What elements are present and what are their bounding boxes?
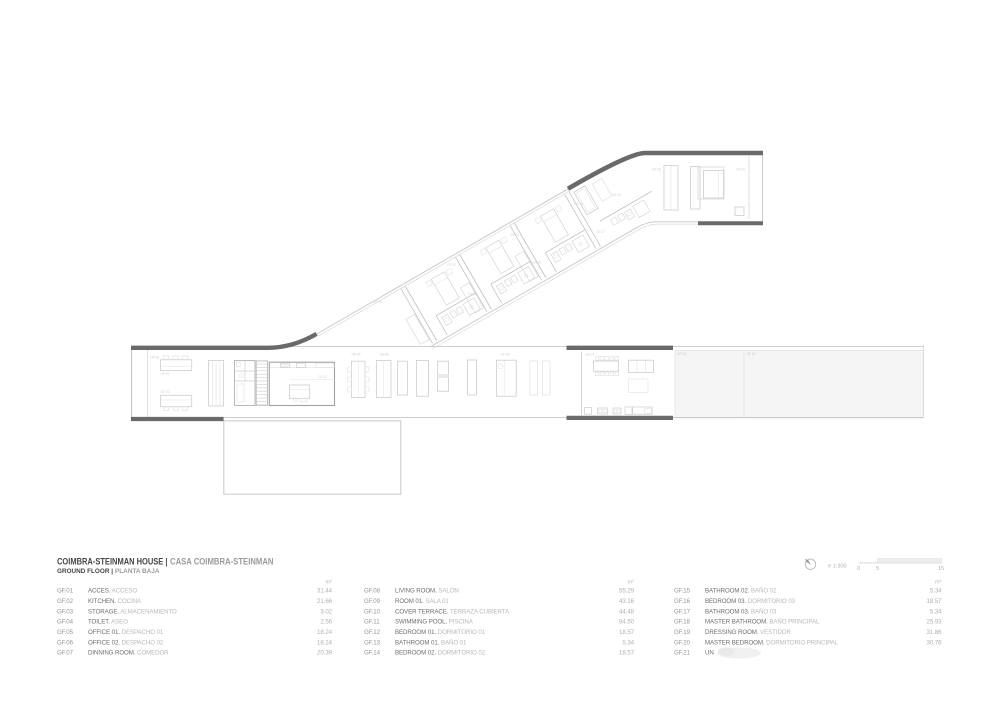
svg-text:GF.16: GF.16 [574, 202, 583, 206]
svg-text:OFFICE 02. DESPACHO 02: OFFICE 02. DESPACHO 02 [88, 639, 164, 646]
svg-text:GF.09: GF.09 [364, 598, 381, 605]
svg-text:GF.08: GF.08 [501, 352, 510, 356]
svg-text:94.50: 94.50 [619, 619, 635, 626]
svg-text:GF.10: GF.10 [677, 352, 686, 356]
svg-text:21.66: 21.66 [317, 598, 333, 605]
svg-text:GF.01: GF.01 [57, 588, 74, 595]
svg-text:GF.04: GF.04 [57, 619, 74, 626]
svg-text:5.34: 5.34 [622, 639, 634, 646]
svg-text:DRESSING ROOM. VESTIDOR: DRESSING ROOM. VESTIDOR [705, 629, 791, 636]
svg-text:31.44: 31.44 [317, 588, 333, 595]
svg-text:UN: UN [705, 650, 714, 657]
svg-text:CASA COIMBRA-STEINMAN: CASA COIMBRA-STEINMAN [170, 557, 274, 567]
svg-text:KITCHEN. COCINA: KITCHEN. COCINA [88, 598, 142, 605]
svg-text:BEDROOM 01. DORMITORIO 01: BEDROOM 01. DORMITORIO 01 [395, 629, 486, 636]
svg-text:PLANTA BAJA: PLANTA BAJA [115, 568, 160, 575]
svg-text:25.93: 25.93 [927, 619, 943, 626]
svg-text:2.56: 2.56 [320, 619, 332, 626]
svg-text:31.86: 31.86 [927, 629, 943, 636]
svg-text:e 1:300: e 1:300 [828, 563, 847, 569]
svg-text:m²: m² [627, 580, 634, 586]
svg-text:18.57: 18.57 [619, 629, 635, 636]
svg-text:5.34: 5.34 [930, 588, 942, 595]
svg-text:GF.18: GF.18 [612, 193, 621, 197]
svg-text:GF.17: GF.17 [596, 230, 605, 234]
svg-text:5.34: 5.34 [930, 608, 942, 615]
svg-text:GF.07: GF.07 [585, 353, 594, 357]
svg-text:BATHROOM 03. BAÑO 03: BATHROOM 03. BAÑO 03 [705, 608, 777, 615]
svg-text:GF.15: GF.15 [532, 261, 541, 265]
svg-text:GF.14: GF.14 [364, 650, 381, 657]
svg-text:GF.17: GF.17 [674, 608, 691, 615]
svg-text:MASTER BEDROOM. DORMITORIO PRI: MASTER BEDROOM. DORMITORIO PRINCIPAL [705, 639, 839, 646]
svg-text:18.24: 18.24 [317, 639, 333, 646]
svg-text:3.02: 3.02 [320, 608, 332, 615]
svg-text:TOILET. ASEO: TOILET. ASEO [88, 619, 128, 626]
svg-text:0: 0 [857, 566, 860, 572]
svg-text:18.57: 18.57 [619, 650, 635, 657]
svg-text:GF.06: GF.06 [57, 639, 74, 646]
svg-text:18.57: 18.57 [927, 598, 943, 605]
svg-text:GF.12: GF.12 [364, 629, 381, 636]
svg-text:MASTER BATHROOM. BAÑO PRINCIPA: MASTER BATHROOM. BAÑO PRINCIPAL [705, 619, 820, 626]
svg-text:44.48: 44.48 [619, 608, 635, 615]
svg-text:5: 5 [876, 566, 879, 572]
svg-text:ACCES. ACCESO: ACCES. ACCESO [88, 588, 137, 595]
svg-text:GF.18: GF.18 [674, 619, 691, 626]
svg-text:GF.05: GF.05 [352, 352, 361, 356]
svg-text:GROUND FLOOR |: GROUND FLOOR | [57, 568, 113, 575]
svg-text:GF.02: GF.02 [318, 375, 327, 379]
svg-text:GF.19: GF.19 [652, 168, 661, 172]
svg-text:OFFICE 01. DESPACHO 01: OFFICE 01. DESPACHO 01 [88, 629, 164, 636]
svg-text:DINNING ROOM. COMEDOR: DINNING ROOM. COMEDOR [88, 650, 169, 657]
svg-text:SWIMMING POOL. PISCINA: SWIMMING POOL. PISCINA [395, 619, 474, 626]
svg-text:COIMBRA-STEINMAN HOUSE |: COIMBRA-STEINMAN HOUSE | [57, 557, 168, 567]
svg-text:GF.20: GF.20 [674, 639, 691, 646]
svg-text:GF.11: GF.11 [364, 619, 380, 626]
svg-text:GF.21: GF.21 [674, 650, 691, 657]
svg-text:GF.15: GF.15 [674, 588, 691, 595]
svg-text:GF.05: GF.05 [57, 629, 74, 636]
svg-text:GF.10: GF.10 [364, 608, 381, 615]
svg-text:m²: m² [325, 580, 332, 586]
svg-text:GF.09: GF.09 [373, 300, 382, 304]
svg-text:GF.08: GF.08 [364, 588, 381, 595]
svg-text:55.29: 55.29 [619, 588, 635, 595]
svg-text:15: 15 [938, 566, 944, 572]
svg-text:GF.02: GF.02 [57, 598, 74, 605]
svg-text:LIVING ROOM. SALÓN: LIVING ROOM. SALÓN [395, 588, 459, 595]
svg-text:20.39: 20.39 [317, 650, 333, 657]
svg-text:BATHROOM 02. BAÑO 02: BATHROOM 02. BAÑO 02 [705, 588, 777, 595]
svg-text:ROOM 01. SALA 01: ROOM 01. SALA 01 [395, 598, 449, 605]
svg-text:GF.01: GF.01 [151, 356, 160, 360]
svg-text:43.16: 43.16 [619, 598, 635, 605]
svg-text:GF.10: GF.10 [747, 352, 756, 356]
svg-text:COVER TERRACE. TERRAZA CUBIERT: COVER TERRACE. TERRAZA CUBIERTA [395, 608, 510, 615]
svg-text:GF.13: GF.13 [364, 639, 381, 646]
svg-text:GF.13: GF.13 [468, 292, 477, 296]
svg-text:GF.07: GF.07 [57, 650, 74, 657]
svg-text:BEDROOM 02. DORMITORIO 02: BEDROOM 02. DORMITORIO 02 [395, 650, 486, 657]
svg-text:BATHROOM 01. BAÑO 01: BATHROOM 01. BAÑO 01 [395, 639, 467, 646]
svg-text:30.76: 30.76 [927, 639, 943, 646]
svg-text:GF.01: GF.01 [161, 372, 170, 376]
svg-text:GF.14: GF.14 [510, 233, 519, 237]
svg-text:GF.03: GF.03 [57, 608, 74, 615]
svg-text:18.24: 18.24 [317, 629, 333, 636]
svg-text:GF.19: GF.19 [674, 629, 691, 636]
svg-text:GF.01: GF.01 [161, 390, 170, 394]
svg-text:STORAGE. ALMACENAMIENTO: STORAGE. ALMACENAMIENTO [88, 608, 177, 615]
svg-text:m²: m² [935, 580, 942, 586]
svg-text:GF.20: GF.20 [736, 168, 745, 172]
svg-text:GF.16: GF.16 [674, 598, 691, 605]
svg-text:BEDROOM 03. DORMITORIO 03: BEDROOM 03. DORMITORIO 03 [705, 598, 796, 605]
svg-text:GF.12: GF.12 [447, 263, 456, 267]
svg-text:GF.06: GF.06 [380, 352, 389, 356]
